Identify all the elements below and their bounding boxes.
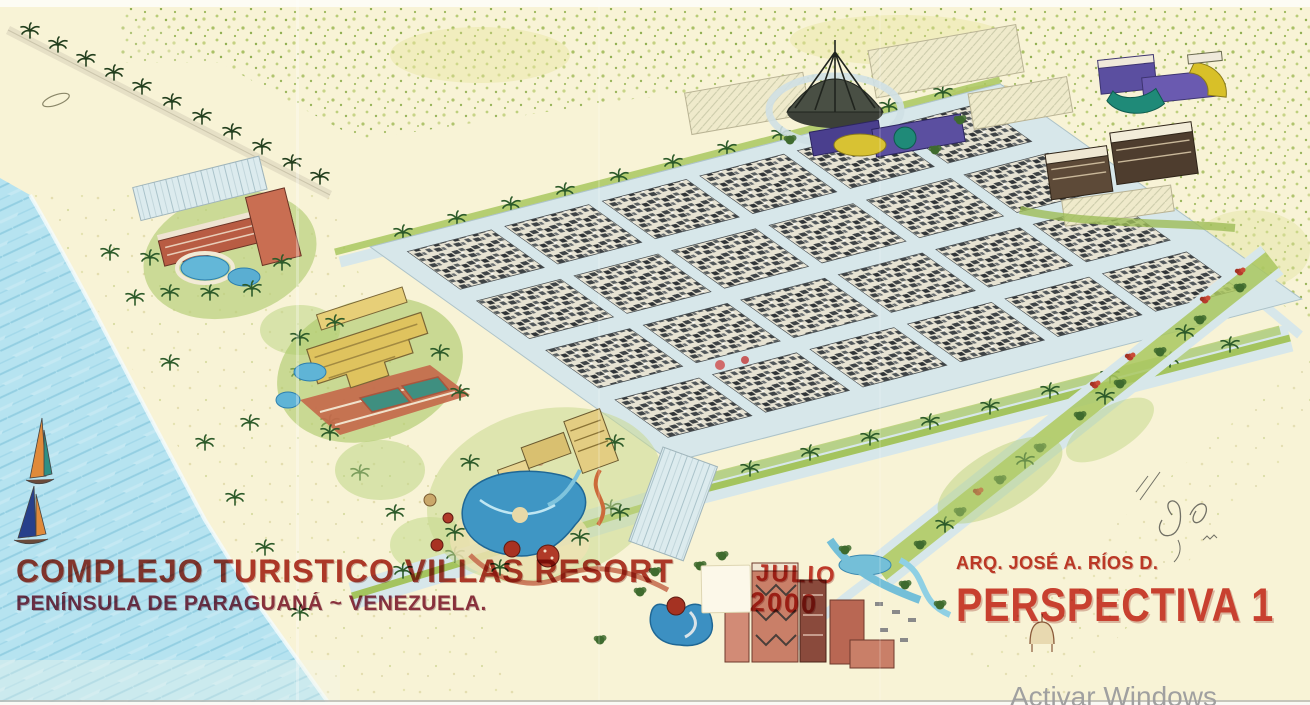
red-dome-kiosk — [667, 597, 685, 615]
sheet-label: PERSPECTIVA 1 — [956, 581, 1274, 628]
top-margin — [0, 0, 1310, 7]
architect-credit: ARQ. JOSÉ A. RÍOS D. — [956, 554, 1158, 572]
windows-activation-watermark: Activar Windows — [1010, 681, 1217, 705]
flower-median — [715, 360, 725, 370]
screenshot-root: COMPLEJO TURISTICO VILLAS RESORT PENÍNSU… — [0, 0, 1310, 705]
paper-patch — [701, 565, 752, 614]
drawing-subtitle: PENÍNSULA DE PARAGUANÁ ~ VENEZUELA. — [16, 593, 487, 614]
lagoon-pool — [181, 256, 229, 280]
drawing-title: COMPLEJO TURISTICO VILLAS RESORT — [16, 555, 674, 587]
cabana — [424, 494, 436, 506]
date-stamp-month: JULIO — [756, 562, 837, 589]
date-stamp-year: 2000 — [750, 589, 819, 618]
